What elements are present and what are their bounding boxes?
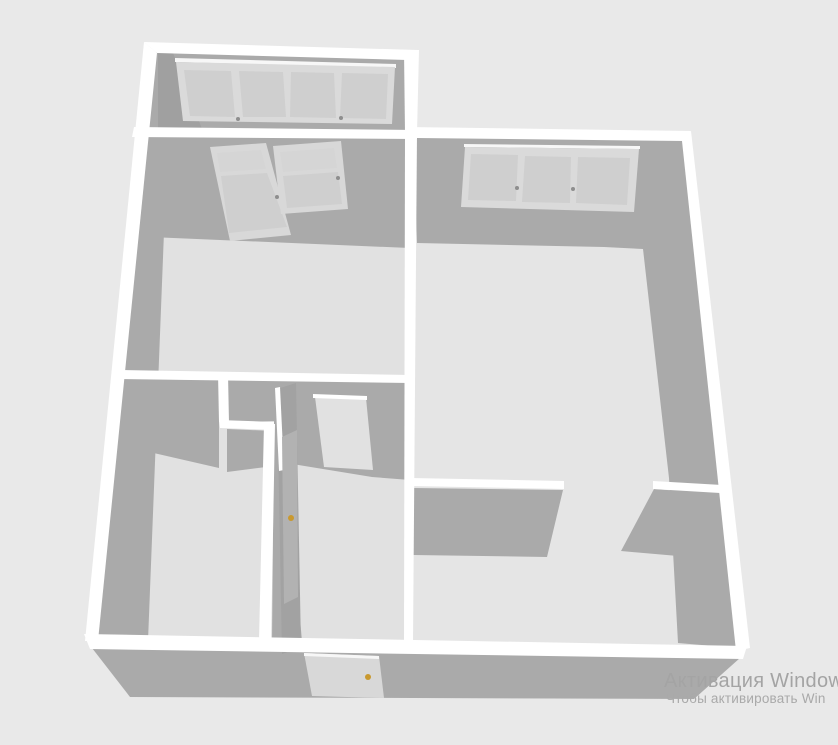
balcony-window-pane (340, 73, 388, 119)
door-handle-icon (288, 515, 294, 521)
entrance-door[interactable] (304, 653, 384, 698)
window-handle-icon (571, 187, 575, 191)
floor-plan-canvas[interactable]: Активация Windows Чтобы активировать Win (0, 0, 838, 745)
balcony-side-window-top-pane (280, 148, 337, 172)
balcony-window-pane (290, 72, 336, 118)
balcony-east-wall-top[interactable] (404, 50, 419, 133)
windows-activation-watermark-line1: Активация Windows (664, 670, 838, 692)
windows-activation-watermark-line2: Чтобы активировать Win (666, 691, 826, 706)
window-handle-icon (236, 117, 240, 121)
kitchen-stub-left-face[interactable] (413, 488, 563, 557)
balcony-window[interactable] (175, 58, 396, 124)
living-room-window-pane (522, 156, 571, 203)
door-handle-icon (275, 195, 279, 199)
door-opening-floor[interactable] (315, 397, 373, 470)
balcony-door-transom-pane (217, 150, 266, 172)
balcony-side-window-bottom-pane (283, 172, 342, 208)
window-handle-icon (515, 186, 519, 190)
balcony-window-pane (239, 71, 286, 117)
living-room-window-pane (468, 154, 518, 201)
balcony-side-window[interactable] (273, 141, 348, 214)
living-room-window-pane (576, 157, 630, 205)
window-handle-icon (336, 176, 340, 180)
nook-inner-face[interactable] (227, 379, 274, 423)
window-handle-icon (339, 116, 343, 120)
entrance-door-leaf (304, 653, 384, 698)
balcony-window-pane (184, 70, 235, 117)
nook-vertical-wall-top[interactable] (218, 373, 229, 423)
living-room-window[interactable] (461, 144, 640, 212)
door-handle-icon (365, 674, 371, 680)
